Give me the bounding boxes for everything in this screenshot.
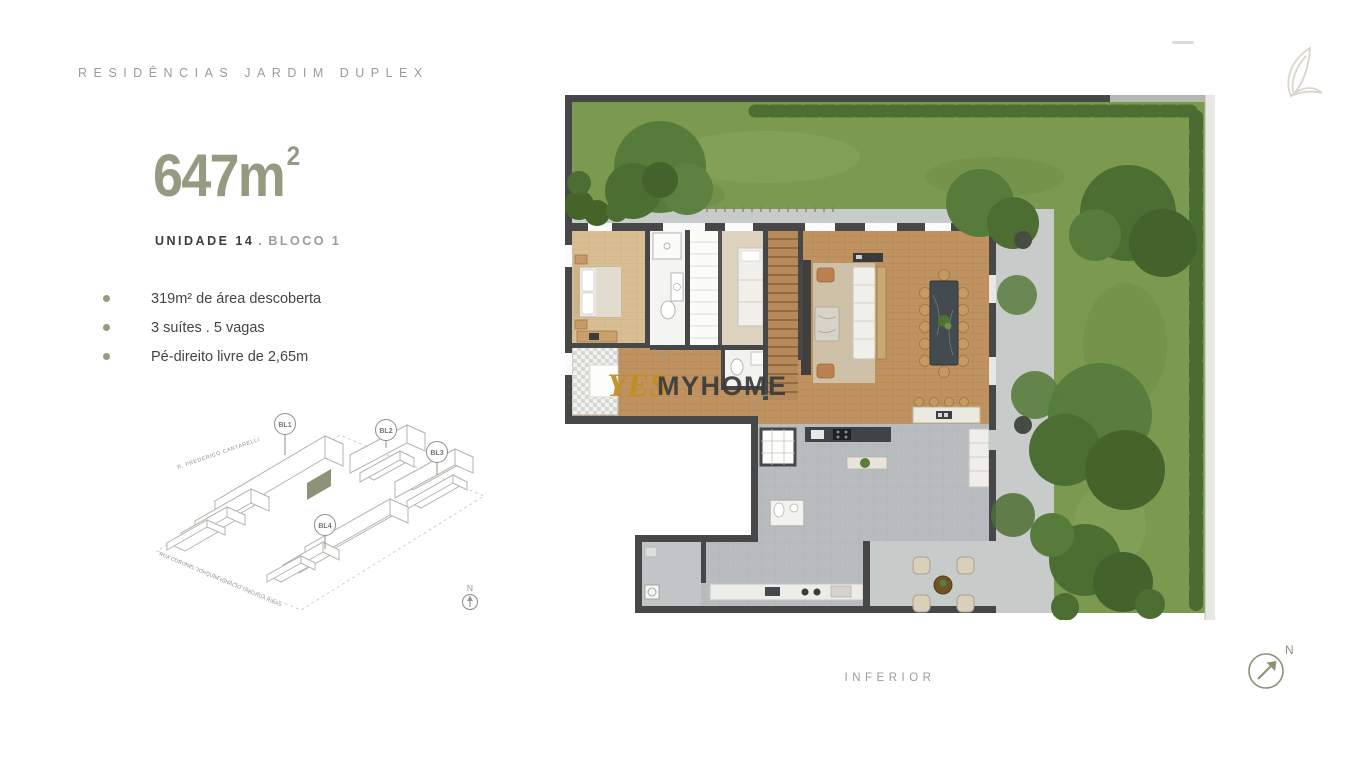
bullet-icon bbox=[103, 295, 110, 302]
block-label-bl2: BL2 bbox=[379, 428, 392, 435]
feature-list: 319m² de área descoberta 3 suítes . 5 va… bbox=[103, 284, 321, 371]
street-label: RUA CORONEL JOAQUIM IGNÁCIO TABORDA RIBA… bbox=[158, 550, 283, 608]
unit-area-value: 647m bbox=[153, 146, 284, 206]
svg-text:MYHOME: MYHOME bbox=[657, 371, 788, 401]
feature-text: 319m² de área descoberta bbox=[151, 291, 321, 307]
unit-block-line: UNIDADE 14.BLOCO 1 bbox=[155, 234, 341, 248]
svg-text:N: N bbox=[1285, 643, 1294, 657]
block-label-bl4: BL4 bbox=[318, 523, 331, 530]
feature-item: 3 suítes . 5 vagas bbox=[103, 313, 321, 342]
bullet-icon bbox=[103, 353, 110, 360]
block-label-bl3: BL3 bbox=[430, 450, 443, 457]
level-label: INFERIOR bbox=[565, 672, 1215, 684]
unit-separator: . bbox=[254, 234, 268, 248]
street-label: R. FREDERICO CANTARELLI bbox=[177, 437, 261, 471]
feature-text: 3 suítes . 5 vagas bbox=[151, 320, 265, 336]
unit-area-exponent: 2 bbox=[287, 143, 301, 203]
north-compass-icon: N bbox=[1238, 636, 1302, 700]
site-edge bbox=[1205, 95, 1215, 620]
top-dash-decoration bbox=[1172, 41, 1194, 44]
unit-label: UNIDADE 14 bbox=[155, 234, 254, 248]
unit-area: 647m2 bbox=[153, 146, 300, 206]
block-label: BLOCO 1 bbox=[268, 234, 341, 248]
feature-item: 319m² de área descoberta bbox=[103, 284, 321, 313]
block-label-bl1: BL1 bbox=[278, 422, 291, 429]
feature-text: Pé-direito livre de 2,65m bbox=[151, 349, 308, 365]
leaf-logo-icon bbox=[1276, 42, 1334, 106]
highlighted-unit bbox=[307, 469, 331, 500]
page-title: RESIDÊNCIAS JARDIM DUPLEX bbox=[78, 66, 429, 80]
floor-plan-image: YES MYHOME bbox=[565, 95, 1215, 620]
feature-item: Pé-direito livre de 2,65m bbox=[103, 342, 321, 371]
site-plan-diagram: BL1 BL2 BL3 BL4 R. FREDERICO CANTARELLI … bbox=[155, 403, 500, 618]
watermark: YES MYHOME bbox=[607, 368, 788, 404]
site-north-compass-icon: N bbox=[463, 583, 478, 610]
bullet-icon bbox=[103, 324, 110, 331]
svg-text:N: N bbox=[467, 583, 473, 593]
